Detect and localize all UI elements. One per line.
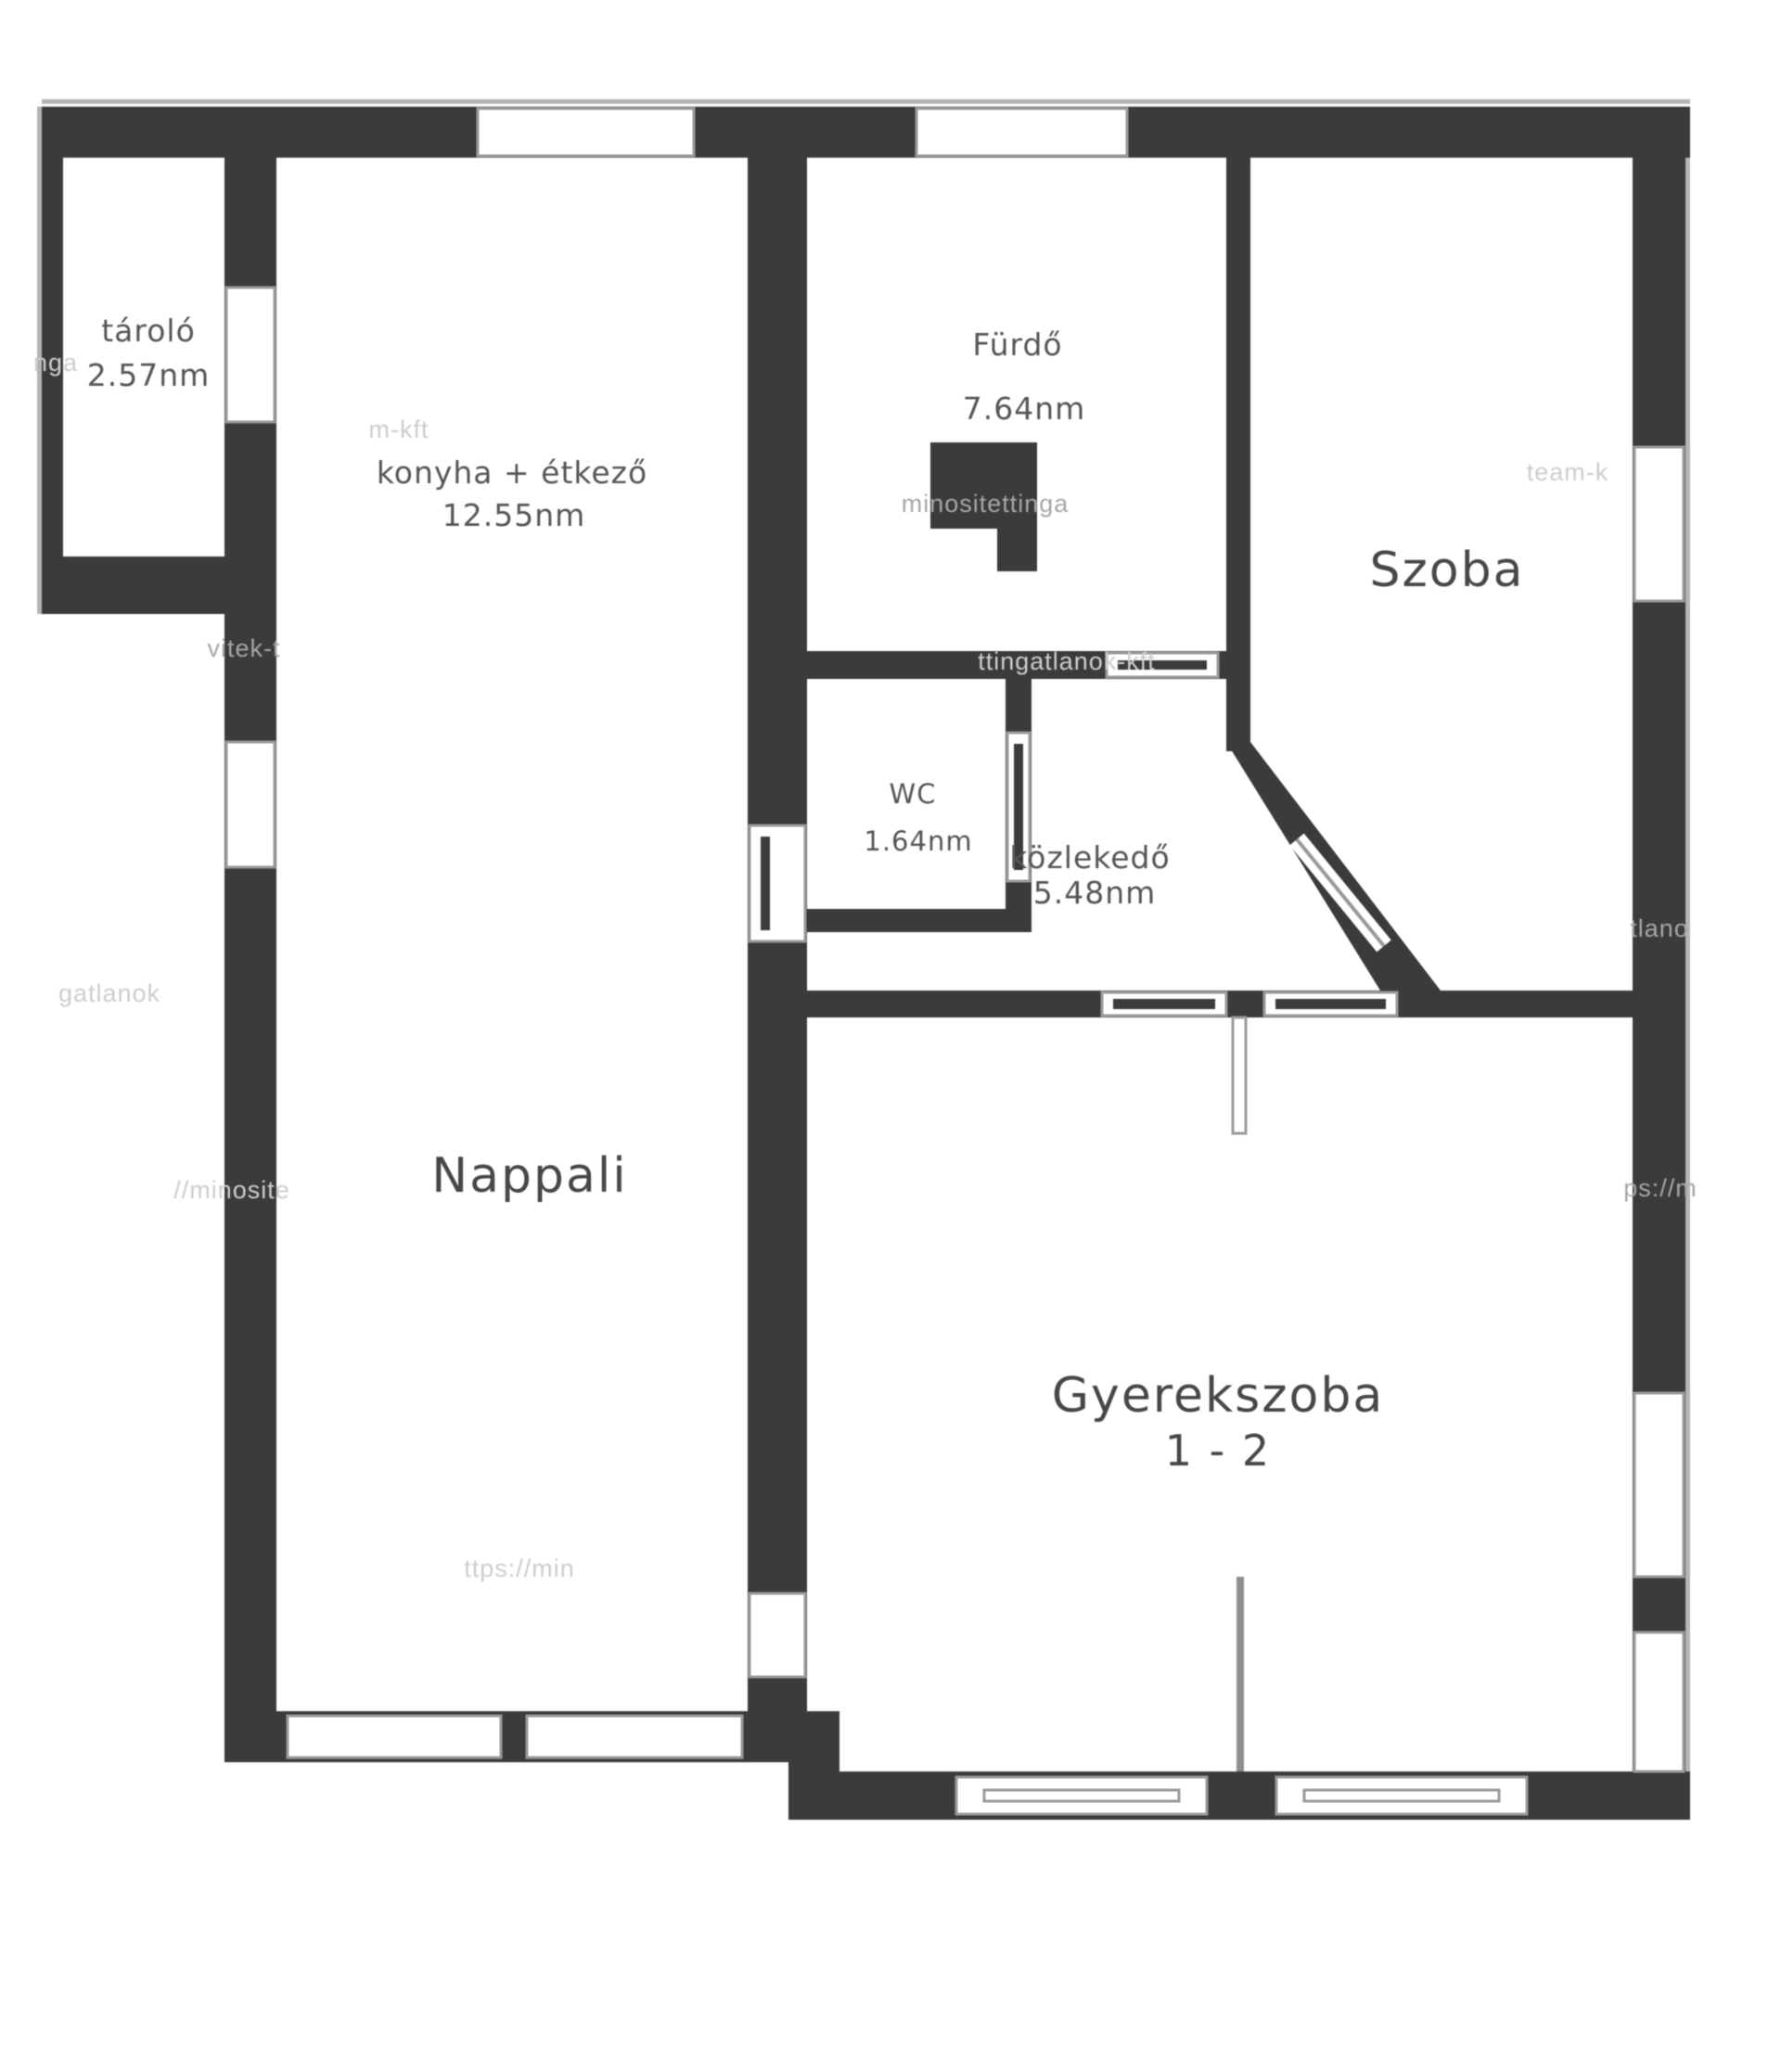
- label-gyerekszoba-subtitle: 1 - 2: [1165, 1426, 1271, 1476]
- watermark-fragment: tlano: [1630, 914, 1689, 942]
- label-gyerekszoba-name: Gyerekszoba: [1052, 1368, 1384, 1424]
- watermark-fragment: gatlanok: [58, 979, 160, 1007]
- window-szoba-right: [1634, 447, 1684, 601]
- wall-center-divider: [748, 158, 807, 1762]
- watermark-fragment: ttingatlanok-kft: [978, 647, 1156, 675]
- door-leaf-nappali: [761, 837, 770, 930]
- label-wc-name: WC: [890, 778, 937, 810]
- label-furdo-area: 7.64nm: [963, 390, 1086, 427]
- outer-edge-top: [42, 99, 1690, 104]
- label-konyha-name: konyha + étkező: [377, 454, 647, 491]
- wall-wc-bottom: [807, 909, 1031, 932]
- label-tarolo-name: tároló: [101, 313, 196, 349]
- wall-top: [42, 107, 1690, 158]
- room-kozlekedo: [1006, 686, 1399, 983]
- label-kozlekedo-name: közlekedő: [1009, 839, 1170, 876]
- floor-plan-canvas: tároló 2.57nm konyha + étkező 12.55nm Fü…: [0, 0, 1781, 2072]
- watermark-fragment: m-kft: [369, 416, 429, 443]
- window-gyerekszoba-right-2: [1634, 1632, 1684, 1771]
- watermark-fragment: ttps://min: [464, 1554, 575, 1582]
- door-nappali-kozlekedo: [750, 825, 805, 941]
- window-nappali-bottom-1: [288, 1716, 501, 1758]
- label-szoba-name: Szoba: [1370, 543, 1525, 598]
- window-gyerekszoba-right-1: [1634, 1393, 1684, 1577]
- window-gyerekszoba-bottom-2: [1276, 1777, 1527, 1814]
- watermark-fragment: ps://m: [1623, 1174, 1698, 1202]
- watermark-fragment: vitek-t: [207, 634, 280, 662]
- wall-gyerekszoba-bottom: [788, 1771, 1690, 1820]
- rooms: [63, 158, 1633, 1771]
- label-konyha-area: 12.55nm: [442, 497, 586, 533]
- window-nappali-bottom-2: [527, 1716, 742, 1758]
- door-leaf-gyerekszoba-2: [1275, 999, 1386, 1009]
- label-nappali-name: Nappali: [431, 1148, 628, 1204]
- door-leaf-gyerekszoba-1: [1113, 999, 1215, 1009]
- outer-edge-right: [1685, 107, 1690, 1820]
- label-furdo-name: Fürdő: [972, 326, 1062, 363]
- window-konyha-top: [478, 109, 694, 156]
- watermark-fragment: minositettinga: [902, 490, 1070, 518]
- watermark-fragment: //minosite: [173, 1176, 290, 1204]
- window-furdo-top: [916, 109, 1127, 156]
- room-konyha: [276, 158, 748, 621]
- window-nappali-gyerekszoba: [750, 1593, 805, 1677]
- label-tarolo-area: 2.57nm: [87, 357, 211, 393]
- label-kozlekedo-area: 5.48nm: [1033, 875, 1157, 911]
- window-nappali-left: [226, 742, 275, 867]
- window-tarolo: [226, 288, 275, 422]
- wall-szoba-left: [1226, 158, 1250, 751]
- label-wc-area: 1.64nm: [864, 825, 972, 857]
- floor-plan-svg: tároló 2.57nm konyha + étkező 12.55nm Fü…: [0, 0, 1781, 2072]
- watermark-fragment: team-k: [1527, 458, 1609, 486]
- window-gyerekszoba-bottom-1: [956, 1777, 1207, 1814]
- watermark-fragment: nga: [33, 349, 78, 377]
